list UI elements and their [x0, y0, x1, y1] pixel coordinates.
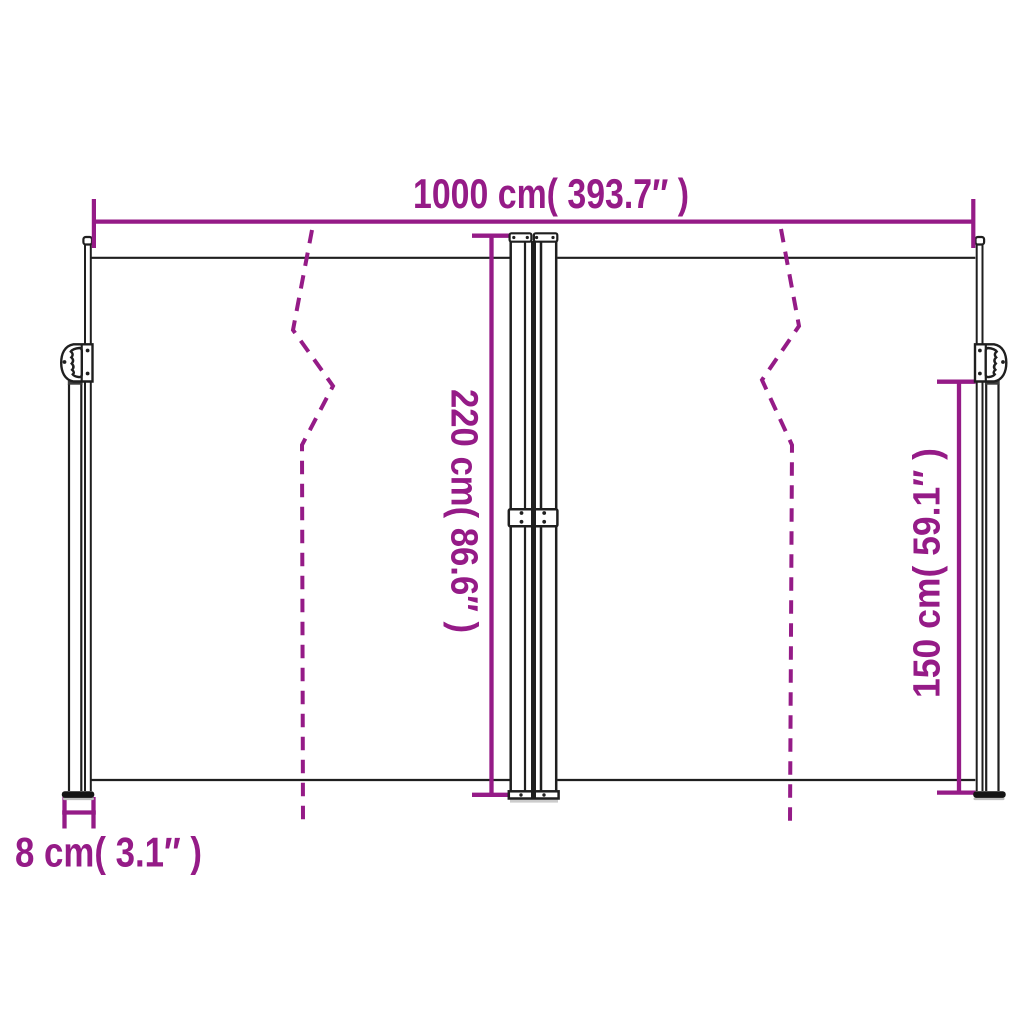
svg-text:1000 cm( 393.7″ ): 1000 cm( 393.7″ ) — [413, 170, 689, 217]
svg-text:220 cm( 86.6″ ): 220 cm( 86.6″ ) — [443, 389, 485, 633]
svg-text:150 cm( 59.1″ ): 150 cm( 59.1″ ) — [907, 448, 949, 698]
svg-text:8 cm( 3.1″ ): 8 cm( 3.1″ ) — [15, 829, 202, 876]
